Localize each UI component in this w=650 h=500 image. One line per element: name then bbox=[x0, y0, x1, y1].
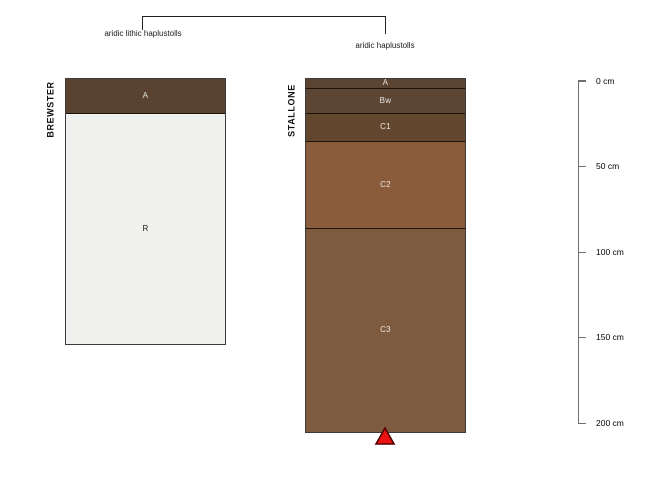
profile-name-brewster: BREWSTER bbox=[46, 75, 59, 145]
brewster-soil-column: AR bbox=[65, 78, 226, 345]
classification-bracket-line bbox=[142, 16, 386, 17]
depth-tick bbox=[578, 337, 586, 338]
horizon-label: Bw bbox=[380, 97, 392, 105]
depth-tick bbox=[578, 423, 586, 424]
horizon-brewster-a: A bbox=[66, 79, 225, 113]
horizon-label: C1 bbox=[380, 123, 391, 131]
horizon-label: C3 bbox=[380, 326, 391, 334]
classification-label-left: aridic lithic haplustolls bbox=[104, 29, 181, 38]
horizon-label: A bbox=[143, 92, 149, 100]
horizon-stallone-c3: C3 bbox=[306, 228, 465, 432]
horizon-stallone-bw: Bw bbox=[306, 88, 465, 114]
depth-tick-label: 100 cm bbox=[596, 247, 624, 258]
depth-tick-label: 200 cm bbox=[596, 418, 624, 429]
horizon-label: R bbox=[142, 225, 148, 233]
depth-tick bbox=[578, 80, 586, 81]
classification-bracket-tick-right bbox=[385, 16, 386, 34]
horizon-label: A bbox=[383, 79, 389, 87]
stallone-soil-column: ABwC1C2C3 bbox=[305, 78, 466, 433]
depth-tick-label: 0 cm bbox=[596, 76, 614, 87]
classification-label-right: aridic haplustolls bbox=[355, 41, 414, 50]
horizon-label: C2 bbox=[380, 181, 391, 189]
horizon-stallone-a: A bbox=[306, 79, 465, 88]
soil-profile-diagram: aridic lithic haplustolls aridic haplust… bbox=[0, 0, 650, 500]
depth-tick-label: 150 cm bbox=[596, 332, 624, 343]
depth-tick bbox=[578, 252, 586, 253]
classification-bracket-tick-left bbox=[142, 16, 143, 30]
sample-marker-triangle-icon bbox=[374, 426, 396, 446]
horizon-stallone-c2: C2 bbox=[306, 141, 465, 228]
horizon-brewster-r: R bbox=[66, 113, 225, 344]
depth-tick bbox=[578, 166, 586, 167]
horizon-stallone-c1: C1 bbox=[306, 113, 465, 140]
profile-name-stallone: STALLONE bbox=[287, 76, 300, 146]
depth-tick-label: 50 cm bbox=[596, 161, 619, 172]
